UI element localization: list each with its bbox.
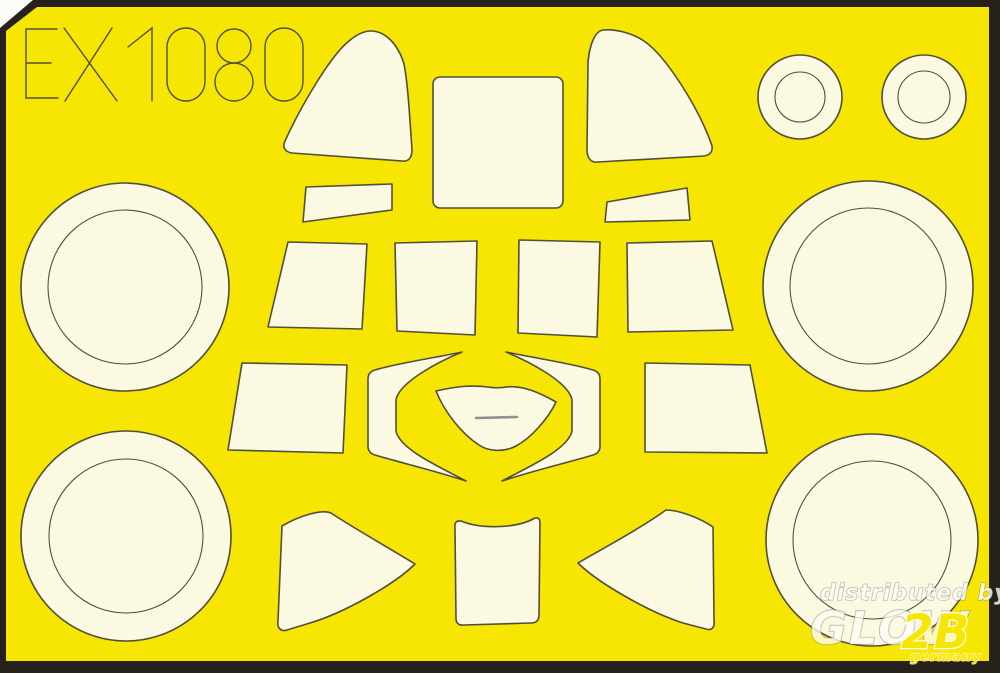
mask-wheel-ring-small-left [758,55,842,139]
mask-quarter-window-c [518,240,600,337]
mask-wheel-ring-small-right [882,55,966,139]
mask-wheel-ring-small-right-outer [882,55,966,139]
mask-wheel-ring-bottom-left-outer [21,431,231,641]
mask-side-panel-right [645,363,767,453]
mask-wheel-ring-top-right [763,181,973,391]
mask-sheet-canvas: distributed by GLOW 2B germany [0,0,1000,673]
mask-quarter-window-b [395,241,477,335]
mask-wheel-ring-bottom-left [21,431,231,641]
mask-detail-marks [476,417,517,418]
hub-center-slit [476,417,517,418]
mask-panel-bottom-center [455,518,540,625]
mask-sheet-product-image: distributed by GLOW 2B germany [0,0,1000,673]
mask-wheel-ring-top-left-outer [21,183,229,391]
mask-side-panel-left [228,363,347,453]
mask-wheel-ring-top-right-outer [763,181,973,391]
watermark-country: germany [910,650,982,665]
mask-canopy-top [433,77,563,208]
mask-wheel-ring-small-left-outer [758,55,842,139]
mask-wheel-ring-top-left [21,183,229,391]
